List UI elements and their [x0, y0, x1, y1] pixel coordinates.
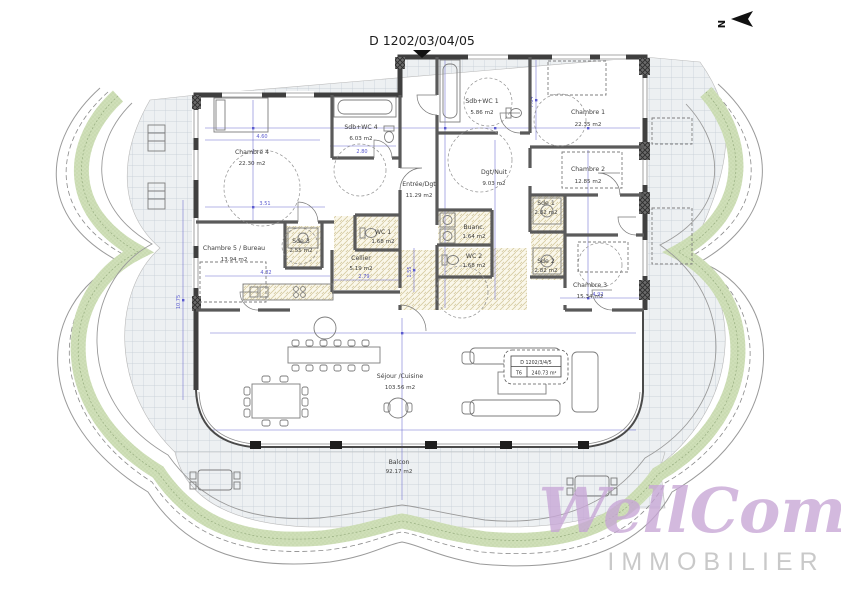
dim-label: 1.55 [407, 266, 413, 277]
svg-text:WC 2: WC 2 [466, 253, 482, 260]
room-label-dgt-nuit: Dgt/Nuit 9.03 m2 [481, 169, 507, 187]
north-label: N [717, 20, 728, 28]
svg-text:6.03 m2: 6.03 m2 [349, 136, 372, 142]
svg-text:Sde 3: Sde 3 [292, 238, 310, 245]
dim-label: 2.79 [358, 274, 369, 280]
svg-text:Chambre 2: Chambre 2 [571, 166, 605, 173]
svg-text:2.55 m2: 2.55 m2 [289, 248, 312, 254]
watermark-caps: IMMOBILIER [607, 548, 824, 576]
svg-text:2.82 m2: 2.82 m2 [534, 268, 557, 274]
room-label-chambre-4: Chambre 4 22.30 m2 [235, 149, 269, 167]
room-label-sdbwc-1: Sdb+WC 1 5.86 m2 [465, 98, 498, 116]
floor-plan-page: 4.60 3.51 2.80 7.04 4.82 2.79 10.75 1.55… [0, 0, 841, 595]
svg-text:Chambre 1: Chambre 1 [571, 109, 605, 116]
svg-text:Buanc.: Buanc. [463, 224, 484, 231]
window-right-wall [641, 78, 648, 276]
svg-text:2.82 m2: 2.82 m2 [534, 210, 557, 216]
svg-text:Sdb+WC 1: Sdb+WC 1 [465, 98, 498, 105]
svg-text:103.56 m2: 103.56 m2 [385, 385, 415, 391]
svg-text:22.30 m2: 22.30 m2 [239, 161, 266, 167]
lot-type: T6 [515, 371, 522, 377]
svg-text:Séjour /Cuisine: Séjour /Cuisine [377, 372, 424, 380]
watermark-script: WellCome [539, 474, 841, 547]
dim-label: 4.60 [256, 134, 267, 140]
room-label-sdbwc-4: Sdb+WC 4 6.03 m2 [344, 124, 377, 142]
floor-plan-canvas: 4.60 3.51 2.80 7.04 4.82 2.79 10.75 1.55… [0, 0, 841, 595]
room-label-chambre-1: Chambre 1 22.35 m2 [571, 109, 605, 128]
plan-title: D 1202/03/04/05 [369, 33, 475, 48]
svg-text:11.29 m2: 11.29 m2 [406, 193, 433, 199]
svg-text:Cellier: Cellier [351, 255, 371, 262]
round-table [384, 398, 412, 418]
svg-text:1.68 m2: 1.68 m2 [462, 263, 485, 269]
svg-text:12.85 m2: 12.85 m2 [575, 179, 602, 185]
svg-text:5.86 m2: 5.86 m2 [470, 110, 493, 116]
dining-table [244, 376, 308, 426]
watermark: WellCome IMMOBILIER [539, 474, 841, 576]
plan-title-group: D 1202/03/04/05 [369, 33, 475, 58]
north-arrow-icon: N [717, 11, 753, 28]
lot-number: D 1202/3/4/5 [520, 360, 551, 366]
bed [578, 242, 628, 272]
svg-text:5.19 m2: 5.19 m2 [349, 266, 372, 272]
room-label-sejour-cuisine: Séjour /Cuisine 103.56 m2 [377, 372, 424, 391]
lot-info-box: D 1202/3/4/5 T6 240.73 m² [504, 350, 568, 384]
svg-text:22.35 m2: 22.35 m2 [575, 122, 602, 128]
bathtub-icon [334, 97, 396, 117]
toilet-icon [384, 126, 394, 143]
room-label-entree-dgt: Entrée/Dgt 11.29 m2 [402, 180, 436, 199]
svg-text:Sde 1: Sde 1 [537, 200, 555, 207]
svg-text:Chambre 5 / Bureau: Chambre 5 / Bureau [203, 245, 265, 252]
lot-area: 240.73 m² [532, 371, 557, 377]
glazed-front [199, 392, 640, 449]
svg-text:1.64 m2: 1.64 m2 [462, 234, 485, 240]
svg-text:Entrée/Dgt: Entrée/Dgt [402, 180, 436, 188]
dim-label: 10.75 [176, 295, 182, 309]
svg-text:Chambre 3: Chambre 3 [573, 282, 607, 289]
svg-text:WC 1: WC 1 [375, 229, 391, 236]
kitchen-island [288, 340, 380, 371]
room-label-chambre-5-bureau: Chambre 5 / Bureau 13.94 m2 [203, 245, 265, 263]
bed [548, 61, 606, 95]
svg-text:13.94 m2: 13.94 m2 [221, 257, 248, 263]
room-label-chambre-3: Chambre 3 15.34 m2 [573, 282, 607, 300]
decor-circle [314, 317, 336, 339]
bed [214, 98, 268, 132]
svg-text:Dgt/Nuit: Dgt/Nuit [481, 169, 507, 176]
dim-label: 3.51 [259, 201, 270, 207]
svg-text:15.34 m2: 15.34 m2 [577, 294, 604, 300]
dim-label: 2.80 [356, 149, 367, 155]
svg-text:Balcon: Balcon [389, 459, 410, 466]
svg-text:92.17 m2: 92.17 m2 [386, 469, 413, 475]
svg-text:Sdb+WC 4: Sdb+WC 4 [344, 124, 377, 131]
svg-text:9.03 m2: 9.03 m2 [482, 181, 505, 187]
svg-text:Sde 2: Sde 2 [537, 258, 555, 265]
svg-text:Chambre 4: Chambre 4 [235, 149, 269, 156]
svg-text:1.68 m2: 1.68 m2 [371, 239, 394, 245]
